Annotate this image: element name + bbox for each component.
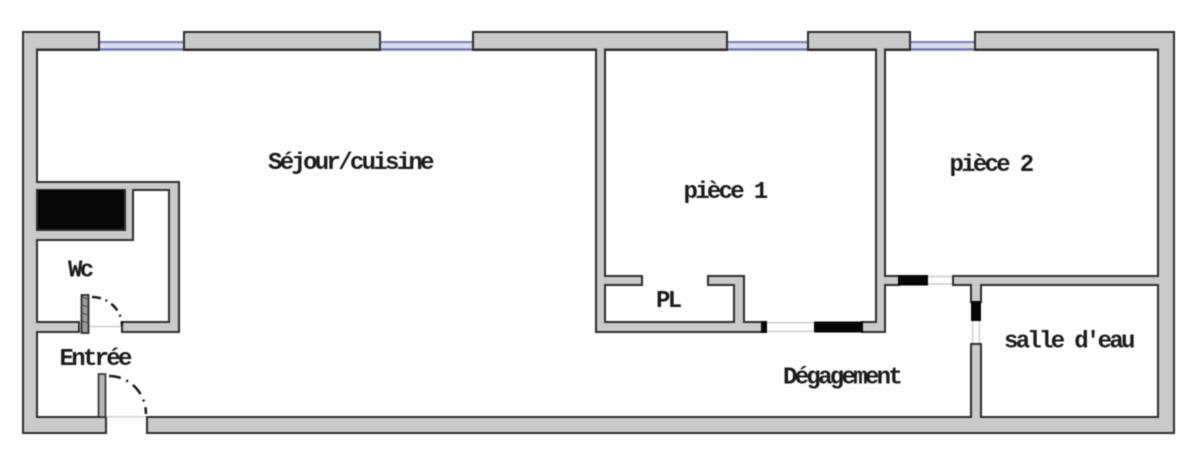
svg-text:Entrée: Entrée [60,346,133,373]
svg-text:pièce 1: pièce 1 [684,179,768,206]
svg-text:Séjour/cuisine: Séjour/cuisine [268,150,434,177]
svg-text:Dégagement: Dégagement [783,365,901,392]
svg-text:Wc: Wc [68,258,93,285]
svg-text:PL: PL [656,288,682,315]
svg-text:salle d'eau: salle d'eau [1004,329,1134,356]
svg-text:pièce 2: pièce 2 [950,152,1033,179]
